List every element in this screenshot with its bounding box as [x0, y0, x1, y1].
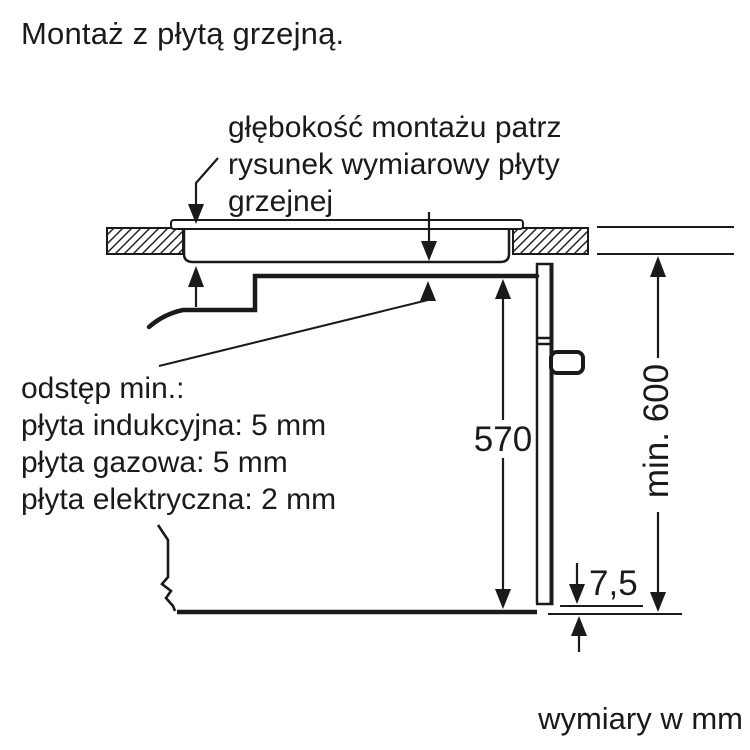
dim-label-niche-height: min. 600 — [637, 364, 677, 498]
oven-top-outline — [149, 276, 537, 327]
gap-leader-arrow-icon — [159, 281, 436, 366]
installation-diagram-page: Montaż z płytą grzejną. głębokość montaż… — [0, 0, 750, 750]
page-title: Montaż z płytą grzejną. — [21, 16, 344, 52]
dim-label-front-overhang: 7,5 — [589, 564, 638, 604]
clearance-gas: płyta gazowa: 5 mm — [21, 444, 336, 481]
units-note: wymiary w mm — [500, 701, 743, 737]
dim-label-oven-height: 570 — [458, 420, 548, 460]
depth-note-line-3: grzejnej — [228, 183, 562, 220]
oven-door-handle — [551, 352, 583, 373]
clearance-heading: odstęp min.: — [21, 370, 336, 407]
depth-note-line-1: głębokość montażu patrz — [228, 109, 562, 146]
clearance-induction: płyta indukcyjna: 5 mm — [21, 407, 336, 444]
clearance-electric: płyta elektryczna: 2 mm — [21, 481, 336, 518]
countertop-extension-lines — [597, 227, 734, 254]
depth-note: głębokość montażu patrz rysunek wymiarow… — [228, 109, 562, 220]
depth-note-line-2: rysunek wymiarowy płyty — [228, 146, 562, 183]
hob-tub-outline — [184, 229, 509, 262]
hob-glass-plate — [171, 220, 523, 229]
countertop-section-right — [513, 228, 588, 254]
oven-left-break-line — [158, 525, 175, 611]
depth-note-leader-arrow-icon — [188, 158, 218, 224]
clearance-note: odstęp min.: płyta indukcyjna: 5 mm płyt… — [21, 370, 336, 518]
countertop-section-left — [107, 228, 183, 254]
gap-arrow-left-icon — [188, 266, 204, 307]
